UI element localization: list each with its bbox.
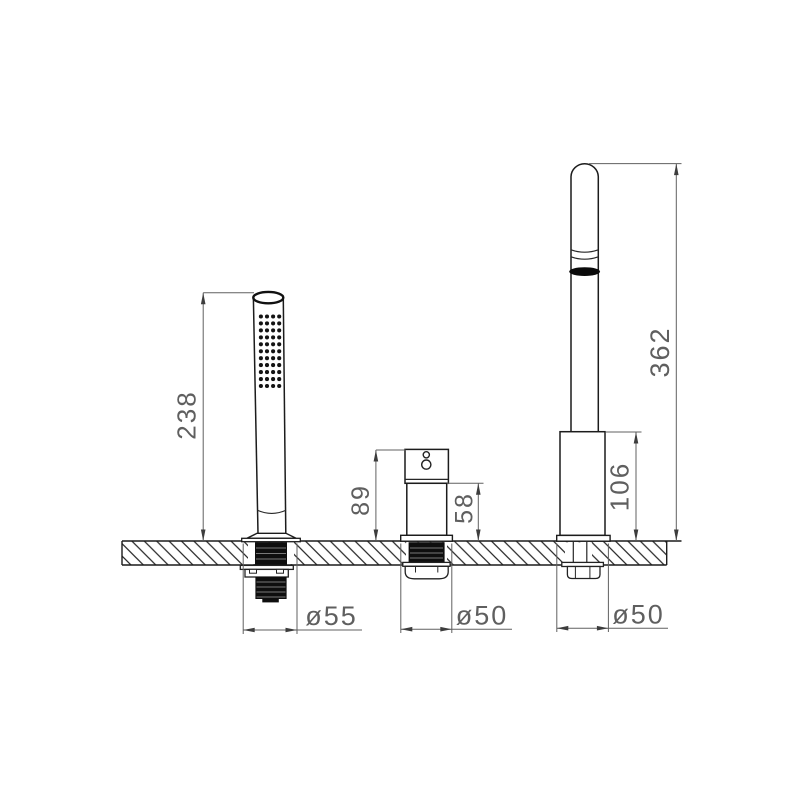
handshower-flange-base — [242, 538, 301, 541]
arrow-left-icon — [243, 628, 255, 633]
nozzle-dot — [271, 370, 275, 374]
arrow-down-icon — [674, 530, 679, 542]
nozzle-dot — [277, 314, 281, 318]
diverter-dot-small — [423, 452, 429, 458]
nozzle-dot — [277, 342, 281, 346]
nozzle-dot — [259, 328, 263, 332]
nozzle-dot — [271, 321, 275, 325]
handshower-threaded-shank — [255, 577, 286, 599]
arrow-down-icon — [634, 530, 639, 542]
nozzle-dot — [271, 335, 275, 339]
nozzle-dot — [259, 377, 263, 381]
nozzle-dot — [271, 384, 275, 388]
nozzle-dot — [265, 384, 269, 388]
arrow-left-icon — [557, 626, 569, 631]
spout — [557, 164, 610, 579]
handshower-wall-right — [283, 299, 286, 533]
dim-106-label: 106 — [604, 462, 634, 511]
dim-238-label: 238 — [171, 390, 201, 439]
locknut-tab-right — [277, 569, 284, 573]
nozzle-dot — [265, 363, 269, 367]
diverter-flange — [401, 535, 453, 541]
arrow-down-icon — [476, 530, 481, 542]
nozzle-dot — [265, 335, 269, 339]
dia50-diverter-label: ø50 — [456, 601, 509, 631]
dim-238: 238 — [171, 293, 254, 541]
handshower-seam — [257, 510, 286, 513]
nozzle-dot — [277, 328, 281, 332]
faucet-dimension-drawing: 238 89 58 106 362 — [0, 0, 800, 800]
spray-nozzle-grid — [259, 314, 281, 388]
diverter-body — [407, 483, 447, 535]
nozzle-dot — [277, 356, 281, 360]
nozzle-dot — [271, 356, 275, 360]
nozzle-dot — [259, 321, 263, 325]
nozzle-dot — [271, 314, 275, 318]
arrow-right-icon — [286, 628, 298, 633]
nozzle-dot — [265, 321, 269, 325]
arrow-right-icon — [440, 627, 452, 632]
spout-aerator-band — [569, 267, 600, 276]
nozzle-dot — [265, 328, 269, 332]
nozzle-dot — [271, 377, 275, 381]
dim-89-label: 89 — [347, 484, 375, 516]
arrow-right-icon — [597, 626, 609, 631]
nozzle-dot — [277, 363, 281, 367]
deck-hole-spout — [565, 542, 592, 564]
arrow-left-icon — [401, 627, 413, 632]
nozzle-dot — [265, 370, 269, 374]
dim-106: 106 — [604, 432, 641, 541]
dim-362-label: 362 — [645, 326, 675, 377]
nozzle-dot — [271, 328, 275, 332]
nozzle-dot — [265, 356, 269, 360]
mounting-deck — [122, 541, 682, 565]
arrow-up-icon — [634, 432, 639, 444]
technical-drawing-canvas: 238 89 58 106 362 — [0, 0, 800, 800]
nozzle-dot — [259, 342, 263, 346]
nozzle-dot — [271, 363, 275, 367]
nozzle-dot — [277, 377, 281, 381]
nozzle-dot — [259, 356, 263, 360]
nozzle-dot — [277, 335, 281, 339]
dim-89: 89 — [347, 450, 405, 541]
dim-58: 58 — [447, 483, 484, 541]
spout-hex-nut — [567, 567, 600, 579]
nozzle-dot — [277, 349, 281, 353]
nozzle-dot — [265, 349, 269, 353]
arrow-up-icon — [674, 164, 679, 176]
dim-58-label: 58 — [451, 492, 479, 524]
nozzle-dot — [271, 342, 275, 346]
handshower-flange-skirt — [247, 533, 296, 538]
arrow-down-icon — [201, 530, 206, 542]
spout-tube — [571, 164, 598, 432]
nozzle-dot — [277, 321, 281, 325]
spout-base-column — [560, 432, 605, 536]
nozzle-dot — [259, 370, 263, 374]
locknut-tab-left — [250, 569, 257, 573]
handshower-head-opening — [253, 292, 283, 303]
nozzle-dot — [277, 370, 281, 374]
nozzle-dot — [265, 342, 269, 346]
nozzle-dot — [259, 314, 263, 318]
diverter-locknut — [405, 566, 448, 579]
diverter-dot-large — [422, 460, 431, 469]
nozzle-dot — [259, 349, 263, 353]
handshower-shank-tip — [262, 599, 279, 602]
nozzle-dot — [277, 384, 281, 388]
nozzle-dot — [265, 377, 269, 381]
dia50-spout-label: ø50 — [612, 600, 665, 630]
nozzle-dot — [271, 349, 275, 353]
diverter-thread-in-deck — [409, 542, 445, 562]
arrow-down-icon — [374, 530, 379, 542]
arrow-up-icon — [374, 450, 379, 462]
nozzle-dot — [259, 363, 263, 367]
handshower-wall-left — [253, 299, 258, 533]
nozzle-dot — [259, 335, 263, 339]
spout-flange — [557, 535, 610, 541]
nozzle-dot — [259, 384, 263, 388]
nozzle-dot — [265, 314, 269, 318]
dia55-label: ø55 — [305, 601, 358, 631]
arrow-up-icon — [201, 293, 206, 305]
